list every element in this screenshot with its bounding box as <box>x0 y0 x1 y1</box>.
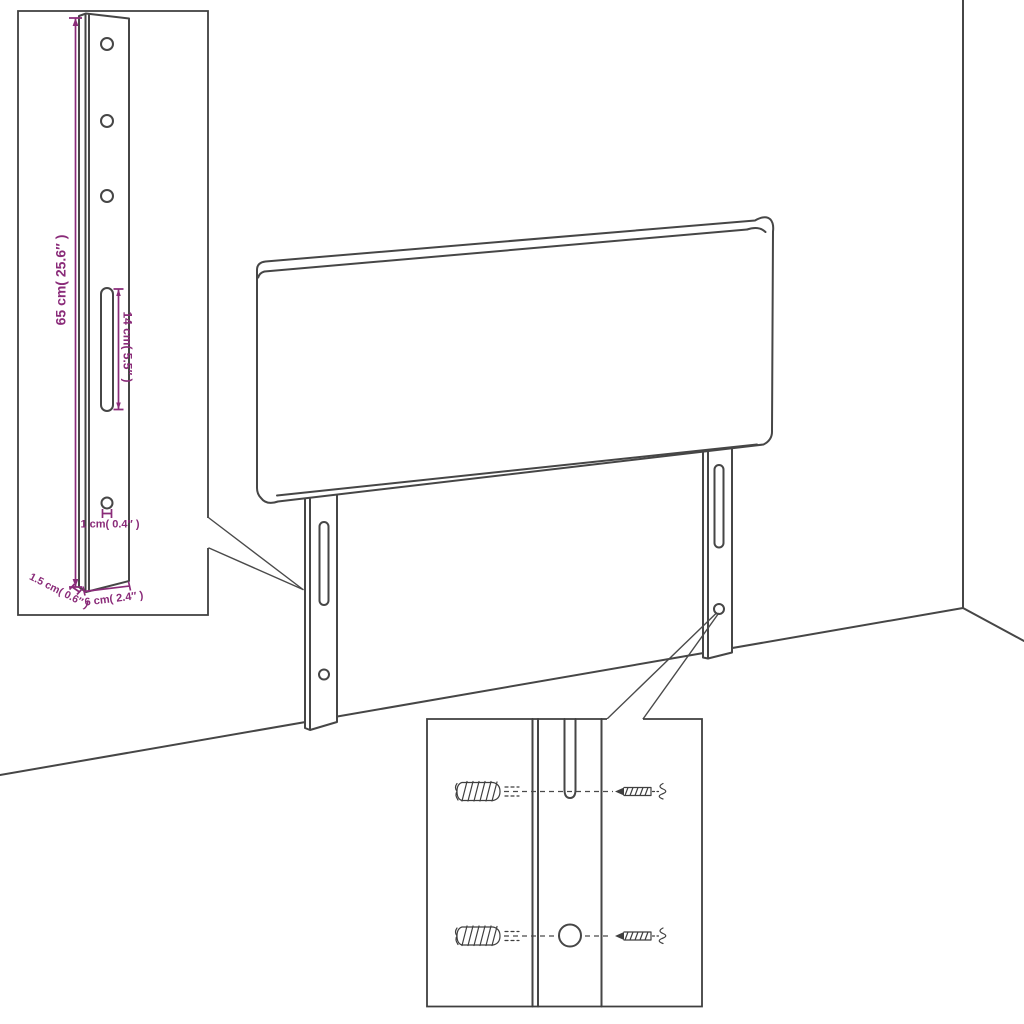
height-dimension-label: 65 cm( 25.6″ ) <box>53 235 69 326</box>
headboard-dimension-diagram: 65 cm( 25.6″ ) 14 cm( 5.5″ ) 1 cm( 0.4″ … <box>0 0 1024 1024</box>
mounting-detail-inset <box>427 719 702 1007</box>
hole-dimension-label: 1 cm( 0.4″ ) <box>80 519 139 531</box>
mounting-detail-hole <box>559 925 581 947</box>
left-mounting-leg <box>305 494 337 730</box>
right-mounting-leg <box>703 445 732 659</box>
slot-dimension-label: 14 cm( 5.5″ ) <box>121 311 135 382</box>
headboard-panel <box>257 217 773 503</box>
leg-detail-drawing <box>79 14 129 593</box>
leader-line-mounting-detail-right <box>643 614 719 720</box>
headboard-outline <box>257 217 773 503</box>
diagram-canvas: 65 cm( 25.6″ ) 14 cm( 5.5″ ) 1 cm( 0.4″ … <box>0 0 1024 1024</box>
leg-detail-inset: 65 cm( 25.6″ ) 14 cm( 5.5″ ) 1 cm( 0.4″ … <box>18 11 208 615</box>
floor-line-right <box>963 608 1024 641</box>
